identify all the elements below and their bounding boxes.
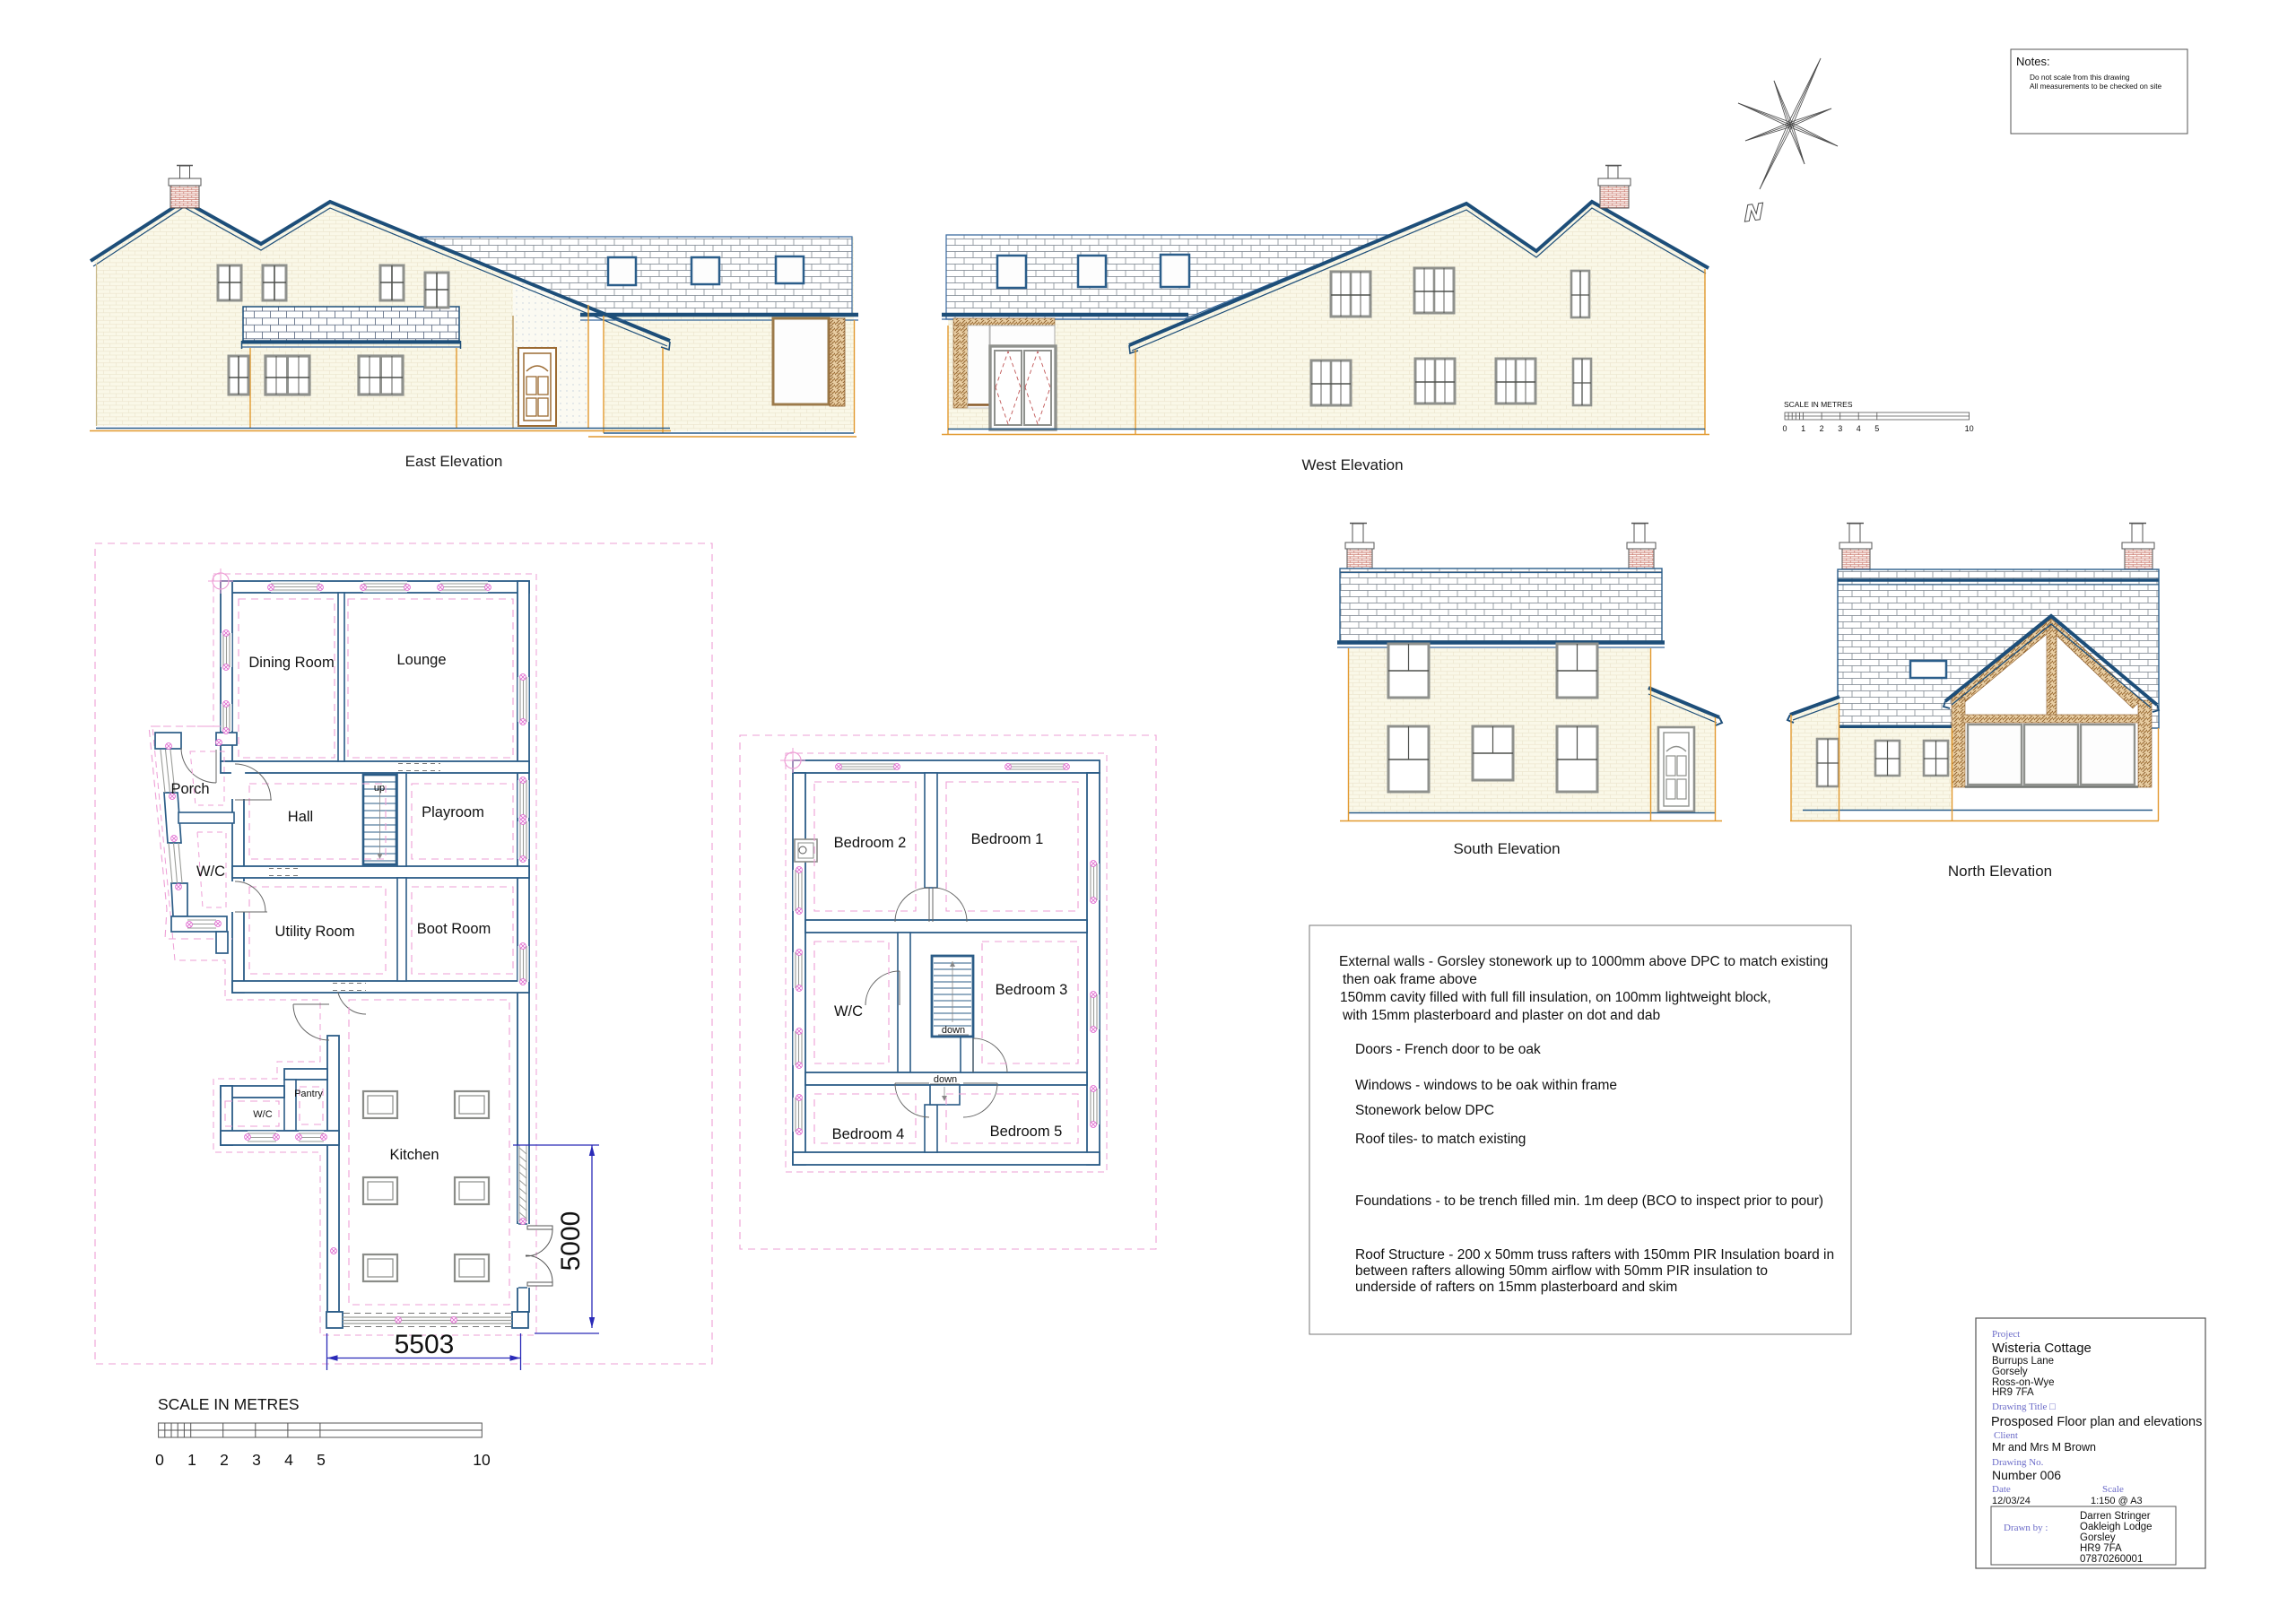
svg-text:Mr and Mrs M Brown: Mr and Mrs M Brown [1992, 1441, 2096, 1454]
svg-text:All measurements to be checked: All measurements to be checked on site [2030, 82, 2162, 91]
svg-text:Wisteria Cottage: Wisteria Cottage [1992, 1341, 2092, 1356]
svg-text:Kitchen: Kitchen [389, 1147, 439, 1163]
svg-text:Bedroom 4: Bedroom 4 [832, 1126, 905, 1142]
svg-text:Do not scale from this drawing: Do not scale from this drawing [2030, 73, 2130, 82]
svg-text:1:150 @ A3: 1:150 @ A3 [2091, 1496, 2143, 1506]
svg-text:SCALE IN METRES: SCALE IN METRES [158, 1395, 300, 1413]
svg-text:Burrups Lane: Burrups Lane [1992, 1356, 2054, 1367]
svg-text:W/C: W/C [834, 1003, 863, 1020]
svg-text:External walls - Gorsley stone: External walls - Gorsley stonework up to… [1339, 954, 1828, 969]
svg-text:07870260001: 07870260001 [2080, 1554, 2143, 1565]
svg-text:5: 5 [1874, 424, 1879, 433]
svg-text:W/C: W/C [196, 864, 225, 880]
svg-text:5: 5 [317, 1451, 326, 1469]
svg-text:SCALE IN METRES: SCALE IN METRES [1784, 400, 1853, 409]
svg-text:Lounge: Lounge [396, 652, 446, 668]
svg-text:Bedroom 2: Bedroom 2 [834, 835, 907, 851]
svg-text:2: 2 [220, 1451, 229, 1469]
svg-text:4: 4 [1857, 424, 1861, 433]
svg-text:3: 3 [1838, 424, 1842, 433]
svg-text:Boot Room: Boot Room [417, 921, 491, 937]
svg-text:Playroom: Playroom [422, 804, 484, 820]
svg-text:North Elevation: North Elevation [1948, 863, 2052, 880]
svg-text:Drawn by :: Drawn by : [2004, 1523, 2048, 1533]
svg-text:10: 10 [1965, 424, 1974, 433]
svg-text:Date: Date [1992, 1484, 2011, 1495]
svg-text:1: 1 [187, 1451, 196, 1469]
svg-text:down: down [934, 1074, 957, 1085]
svg-text:Stonework below DPC: Stonework below DPC [1355, 1103, 1494, 1118]
svg-text:Bedroom 5: Bedroom 5 [990, 1124, 1063, 1140]
svg-text:down: down [942, 1025, 965, 1036]
svg-text:12/03/24: 12/03/24 [1992, 1496, 2031, 1506]
svg-text:Dining Room: Dining Room [248, 655, 334, 671]
svg-text:150mm cavity filled with full: 150mm cavity filled with full fill insul… [1340, 990, 1771, 1005]
svg-text:with 15mm plasterboard and pla: with 15mm plasterboard and plaster on do… [1342, 1008, 1660, 1023]
svg-text:10: 10 [473, 1451, 491, 1469]
svg-text:Oakleigh Lodge: Oakleigh Lodge [2080, 1522, 2152, 1532]
svg-text:then oak frame above: then oak frame above [1343, 972, 1477, 987]
svg-text:Pantry: Pantry [294, 1089, 323, 1099]
svg-text:5000: 5000 [556, 1211, 586, 1271]
svg-text:Number 006: Number 006 [1992, 1468, 2061, 1482]
svg-text:Drawing Title □: Drawing Title □ [1992, 1402, 2056, 1412]
svg-text:W/C: W/C [253, 1109, 272, 1120]
svg-text:Foundations - to be trench fil: Foundations - to be trench filled min. 1… [1355, 1193, 1823, 1209]
svg-text:East Elevation: East Elevation [405, 453, 503, 470]
svg-text:up: up [374, 783, 385, 794]
svg-text:Roof Structure - 200 x 50mm tr: Roof Structure - 200 x 50mm truss rafter… [1355, 1247, 1834, 1263]
svg-text:Darren Stringer: Darren Stringer [2080, 1511, 2151, 1522]
svg-text:Bedroom 1: Bedroom 1 [971, 831, 1044, 847]
svg-text:Drawing No.: Drawing No. [1992, 1457, 2044, 1468]
svg-text:Gorsley: Gorsley [2080, 1532, 2116, 1543]
svg-text:underside of rafters on 15mm p: underside of rafters on 15mm plasterboar… [1355, 1280, 1677, 1295]
svg-text:1: 1 [1801, 424, 1805, 433]
svg-text:Roof tiles- to match existing: Roof tiles- to match existing [1355, 1132, 1526, 1147]
svg-text:HR9 7FA: HR9 7FA [1992, 1387, 2034, 1398]
svg-text:HR9 7FA: HR9 7FA [2080, 1543, 2122, 1554]
svg-text:Notes:: Notes: [2016, 55, 2050, 68]
svg-text:between rafters allowing 50mm: between rafters allowing 50mm airflow wi… [1355, 1263, 1768, 1279]
svg-text:Gorsely: Gorsely [1992, 1367, 2028, 1377]
svg-text:Utility Room: Utility Room [275, 924, 355, 940]
svg-text:Prosposed Floor plan and eleva: Prosposed Floor plan and elevations [1991, 1415, 2202, 1429]
svg-text:Bedroom 3: Bedroom 3 [996, 982, 1068, 998]
svg-text:2: 2 [1820, 424, 1824, 433]
svg-text:West Elevation: West Elevation [1301, 456, 1403, 473]
svg-text:Doors - French door to be oak: Doors - French door to be oak [1355, 1042, 1541, 1057]
svg-text:Porch: Porch [170, 781, 209, 797]
svg-text:0: 0 [155, 1451, 164, 1469]
svg-text:3: 3 [252, 1451, 261, 1469]
svg-text:Windows - windows to be oak wi: Windows - windows to be oak within frame [1355, 1078, 1617, 1093]
svg-text:5503: 5503 [395, 1330, 455, 1359]
svg-text:Hall: Hall [288, 809, 313, 825]
svg-text:Project: Project [1992, 1329, 2020, 1340]
svg-text:Client: Client [1994, 1430, 2018, 1441]
svg-text:Scale: Scale [2102, 1484, 2124, 1495]
svg-text:4: 4 [284, 1451, 293, 1469]
svg-text:0: 0 [1782, 424, 1787, 433]
svg-text:South Elevation: South Elevation [1453, 840, 1560, 857]
